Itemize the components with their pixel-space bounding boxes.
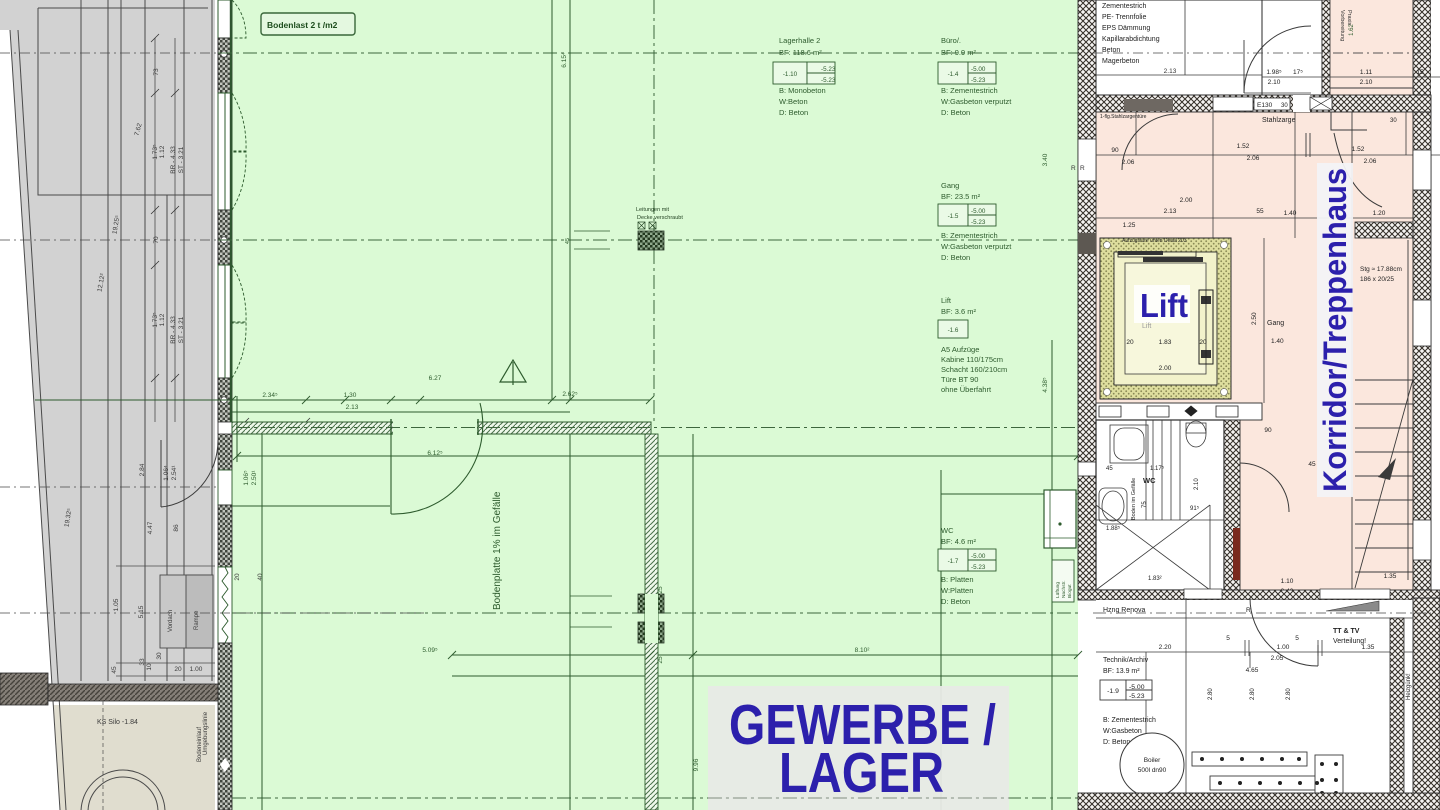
svg-text:-1.6: -1.6 [948,327,959,334]
svg-text:-5.00: -5.00 [971,553,986,560]
svg-text:1.35: 1.35 [1362,644,1375,651]
svg-text:2.06: 2.06 [1122,159,1135,166]
svg-text:1.35: 1.35 [1384,573,1397,580]
svg-text:ohne Überfahrt: ohne Überfahrt [941,385,992,394]
svg-text:25: 25 [657,656,664,664]
svg-text:1.05: 1.05 [113,598,120,611]
svg-text:4.65: 4.65 [1246,667,1259,674]
svg-text:1.62: 1.62 [1349,24,1355,36]
svg-text:1.40: 1.40 [1284,210,1297,217]
svg-text:17⁵: 17⁵ [1293,69,1303,76]
svg-text:2.00: 2.00 [1159,365,1172,372]
svg-text:Leitungen mit: Leitungen mit [636,207,669,213]
svg-text:TT & TV: TT & TV [1333,628,1360,635]
svg-text:30: 30 [1390,118,1397,124]
svg-text:6.27: 6.27 [429,375,442,382]
svg-text:90: 90 [1264,427,1272,434]
svg-text:Heizgünk!: Heizgünk! [1406,673,1412,700]
svg-text:-1.10: -1.10 [783,71,798,78]
svg-text:6.15⁴: 6.15⁴ [561,52,568,68]
svg-text:1.73⁵: 1.73⁵ [152,144,159,160]
svg-text:Zementestrich: Zementestrich [1102,3,1146,10]
svg-text:BR - 4.33: BR - 4.33 [170,316,177,344]
svg-text:Magerbeton: Magerbeton [1102,58,1139,65]
svg-text:D: Beton: D: Beton [779,108,808,117]
svg-text:-5.23: -5.23 [971,77,986,84]
svg-text:40: 40 [257,573,264,581]
svg-text:20: 20 [174,666,182,673]
svg-text:Technik/Archiv: Technik/Archiv [1103,657,1149,664]
svg-text:2.62⁵: 2.62⁵ [562,391,578,398]
svg-text:20: 20 [234,573,241,581]
svg-text:ST - 3.21: ST - 3.21 [178,316,185,343]
svg-text:1.20: 1.20 [1373,210,1386,217]
svg-text:BR - 4.33: BR - 4.33 [170,146,177,174]
svg-text:Lift: Lift [941,296,952,305]
svg-text:W:Gasbeton verputzt: W:Gasbeton verputzt [941,242,1012,251]
svg-text:-5.00: -5.00 [1129,684,1145,691]
svg-text:Vorbereitung: Vorbereitung [1339,10,1345,41]
svg-text:1-flg.Stahlzargentüre: 1-flg.Stahlzargentüre [1100,114,1147,120]
svg-text:500l dn90: 500l dn90 [1138,767,1167,774]
svg-text:5: 5 [1226,635,1230,642]
svg-text:1.17⁵: 1.17⁵ [1150,465,1165,472]
svg-text:Gang: Gang [1267,320,1284,327]
svg-text:-1.5: -1.5 [948,213,959,220]
svg-text:Umgebungslinie: Umgebungslinie [203,711,209,755]
svg-text:Praxis: Praxis [1346,10,1352,26]
svg-text:B: Zementestrich: B: Zementestrich [1103,717,1156,724]
svg-text:E130: E130 [1257,102,1273,109]
svg-text:-1.9: -1.9 [1107,688,1119,695]
svg-text:BF: 23.5 m²: BF: 23.5 m² [941,192,981,201]
svg-text:2.84: 2.84 [139,463,146,476]
svg-text:D: Beton: D: Beton [941,108,970,117]
svg-text:55: 55 [1256,208,1264,215]
svg-text:91⁵: 91⁵ [1190,505,1200,512]
svg-text:Aufzugstüre unten Detail 203: Aufzugstüre unten Detail 203 [1122,238,1187,244]
svg-text:1.12: 1.12 [159,313,166,326]
svg-text:73: 73 [153,68,160,76]
svg-text:20: 20 [1199,339,1207,346]
svg-text:W:Platten: W:Platten [941,586,973,595]
svg-text:Büro/.: Büro/. [941,36,961,45]
svg-text:Boden im Gefälle: Boden im Gefälle [1131,478,1137,520]
svg-text:2.05: 2.05 [1271,655,1284,662]
svg-text:90: 90 [1111,147,1119,154]
svg-text:KS Silo -1.84: KS Silo -1.84 [97,719,138,726]
svg-text:-5.00: -5.00 [971,66,986,73]
svg-text:Stg ≈ 17.88cm: Stg ≈ 17.88cm [1360,266,1402,273]
svg-text:B: Zementestrich: B: Zementestrich [941,86,998,95]
svg-text:Bodenlast 2 t /m2: Bodenlast 2 t /m2 [267,20,338,30]
svg-text:2.50¹: 2.50¹ [251,470,258,486]
svg-text:BF: 4.6 m²: BF: 4.6 m² [941,537,977,546]
svg-text:20: 20 [1126,339,1134,346]
svg-text:-5.23: -5.23 [821,77,836,84]
svg-text:-5.23: -5.23 [1129,693,1145,700]
svg-text:BF: 118.6 m²: BF: 118.6 m² [779,48,822,57]
svg-text:186 x 20/25: 186 x 20/25 [1360,276,1394,283]
svg-text:Stahlzarge: Stahlzarge [1262,117,1296,124]
svg-text:WC: WC [941,526,954,535]
svg-text:2.34⁵: 2.34⁵ [262,392,278,399]
svg-text:R: R [1080,165,1085,172]
svg-text:30: 30 [156,652,163,660]
svg-text:Biogut: Biogut [1067,584,1073,598]
svg-text:2.06: 2.06 [1364,158,1377,165]
svg-text:6.12⁵: 6.12⁵ [427,450,443,457]
svg-text:1.88⁵: 1.88⁵ [1106,525,1121,532]
svg-text:1.11: 1.11 [1360,69,1373,76]
svg-text:-5.23: -5.23 [971,564,986,571]
svg-text:Gang: Gang [941,181,959,190]
svg-text:-1.4: -1.4 [948,71,959,78]
svg-text:45: 45 [111,666,118,674]
svg-text:5.09⁵: 5.09⁵ [422,647,438,654]
svg-text:2.13: 2.13 [1164,68,1177,75]
svg-text:EPS Dämmung: EPS Dämmung [1102,25,1150,32]
svg-text:2.10: 2.10 [1194,478,1200,490]
svg-text:9.96: 9.96 [693,758,700,771]
svg-text:1.25: 1.25 [1123,222,1136,229]
svg-text:D: Beton: D: Beton [1103,739,1130,746]
svg-text:PE- Trennfolie: PE- Trennfolie [1102,14,1146,21]
svg-text:R: R [1071,165,1076,172]
svg-text:Türe BT 90: Türe BT 90 [941,375,978,384]
svg-text:W:Gasbeton verputzt: W:Gasbeton verputzt [941,97,1012,106]
svg-text:2.50: 2.50 [1251,312,1258,325]
svg-text:33: 33 [139,658,146,666]
svg-text:15: 15 [1416,69,1424,76]
svg-text:1.83²: 1.83² [1148,576,1162,582]
svg-text:1.10: 1.10 [1281,578,1294,585]
svg-text:D: Beton: D: Beton [941,253,970,262]
svg-text:1.12: 1.12 [159,145,166,158]
svg-text:-1.7: -1.7 [948,558,959,565]
svg-text:BF: 13.9 m²: BF: 13.9 m² [1103,668,1140,675]
svg-text:30: 30 [1281,103,1288,109]
svg-text:W:Gasbeton: W:Gasbeton [1103,728,1142,735]
svg-text:86: 86 [173,524,180,532]
svg-text:75: 75 [1142,501,1148,508]
svg-text:1.00: 1.00 [1277,644,1290,651]
svg-text:Kabine 110/175cm: Kabine 110/175cm [941,355,1003,364]
svg-text:Decke verschraubt: Decke verschraubt [637,215,683,221]
svg-text:W:Beton: W:Beton [779,97,808,106]
svg-text:2.80: 2.80 [1208,688,1214,700]
svg-text:2.80: 2.80 [1286,688,1292,700]
svg-text:A5 Aufzüge: A5 Aufzüge [941,345,979,354]
svg-text:5: 5 [1295,635,1299,642]
svg-text:Kapillarabdichtung: Kapillarabdichtung [1102,36,1160,43]
svg-text:5.15: 5.15 [138,605,145,618]
svg-text:2.06: 2.06 [1247,155,1260,162]
svg-text:2.80: 2.80 [1250,688,1256,700]
svg-text:ST - 3.21: ST - 3.21 [178,146,185,173]
svg-text:2.10: 2.10 [1360,79,1373,86]
svg-text:Schacht 160/210cm: Schacht 160/210cm [941,365,1007,374]
svg-text:Lift: Lift [1140,287,1188,324]
svg-text:10: 10 [146,663,153,671]
svg-text:BF: 3.6 m²: BF: 3.6 m² [941,307,977,316]
svg-text:1.30: 1.30 [344,392,357,399]
svg-text:D: Beton: D: Beton [941,597,970,606]
svg-text:1.06⁵: 1.06⁵ [243,470,250,486]
svg-text:1.06⁴: 1.06⁴ [163,465,170,481]
svg-text:1.52: 1.52 [1237,143,1250,150]
svg-text:3.40: 3.40 [1042,153,1049,166]
svg-text:Lüftung: Lüftung [1055,582,1061,598]
svg-text:8.10²: 8.10² [855,647,871,654]
svg-text:1.52: 1.52 [1352,146,1365,153]
svg-text:1.83: 1.83 [1159,339,1172,346]
svg-text:Lagerhalle 2: Lagerhalle 2 [779,36,820,45]
svg-text:-5.00: -5.00 [971,208,986,215]
svg-text:2.13: 2.13 [1164,208,1177,215]
svg-text:Bodeneinlauf: Bodeneinlauf [197,727,203,762]
svg-text:2.13: 2.13 [346,404,359,411]
svg-text:Nachstr.: Nachstr. [1061,580,1067,598]
svg-text:45: 45 [565,238,571,244]
svg-text:45: 45 [1106,466,1113,472]
svg-text:1.40: 1.40 [1271,338,1284,345]
svg-text:B: Zementestrich: B: Zementestrich [941,231,998,240]
svg-text:B: Monobeton: B: Monobeton [779,86,826,95]
svg-text:1.73⁵: 1.73⁵ [152,312,159,328]
svg-text:B: Platten: B: Platten [941,575,974,584]
svg-text:-5.23: -5.23 [821,66,836,73]
svg-text:Boiler: Boiler [1144,757,1161,764]
svg-text:1.00: 1.00 [190,666,203,673]
svg-text:Korridor/Treppenhaus: Korridor/Treppenhaus [1317,168,1353,492]
svg-text:2.20: 2.20 [1159,644,1172,651]
svg-text:Bodenplatte 1% im Gefälle: Bodenplatte 1% im Gefälle [492,491,503,610]
svg-text:2.10: 2.10 [1268,79,1281,86]
svg-text:LAGER: LAGER [779,741,944,805]
svg-text:4.38⁵: 4.38⁵ [1042,377,1049,393]
svg-text:WC: WC [1143,476,1156,485]
svg-text:Lift: Lift [1142,323,1151,330]
svg-text:1.98⁵: 1.98⁵ [1266,69,1282,76]
svg-text:BF: 9.9 m²: BF: 9.9 m² [941,48,977,57]
svg-text:2.54¹: 2.54¹ [171,465,178,481]
svg-text:-5.23: -5.23 [971,219,986,226]
svg-text:25: 25 [657,586,664,594]
svg-text:45: 45 [1308,461,1316,468]
svg-text:4.47: 4.47 [147,521,154,534]
svg-text:2.00: 2.00 [1180,197,1193,204]
